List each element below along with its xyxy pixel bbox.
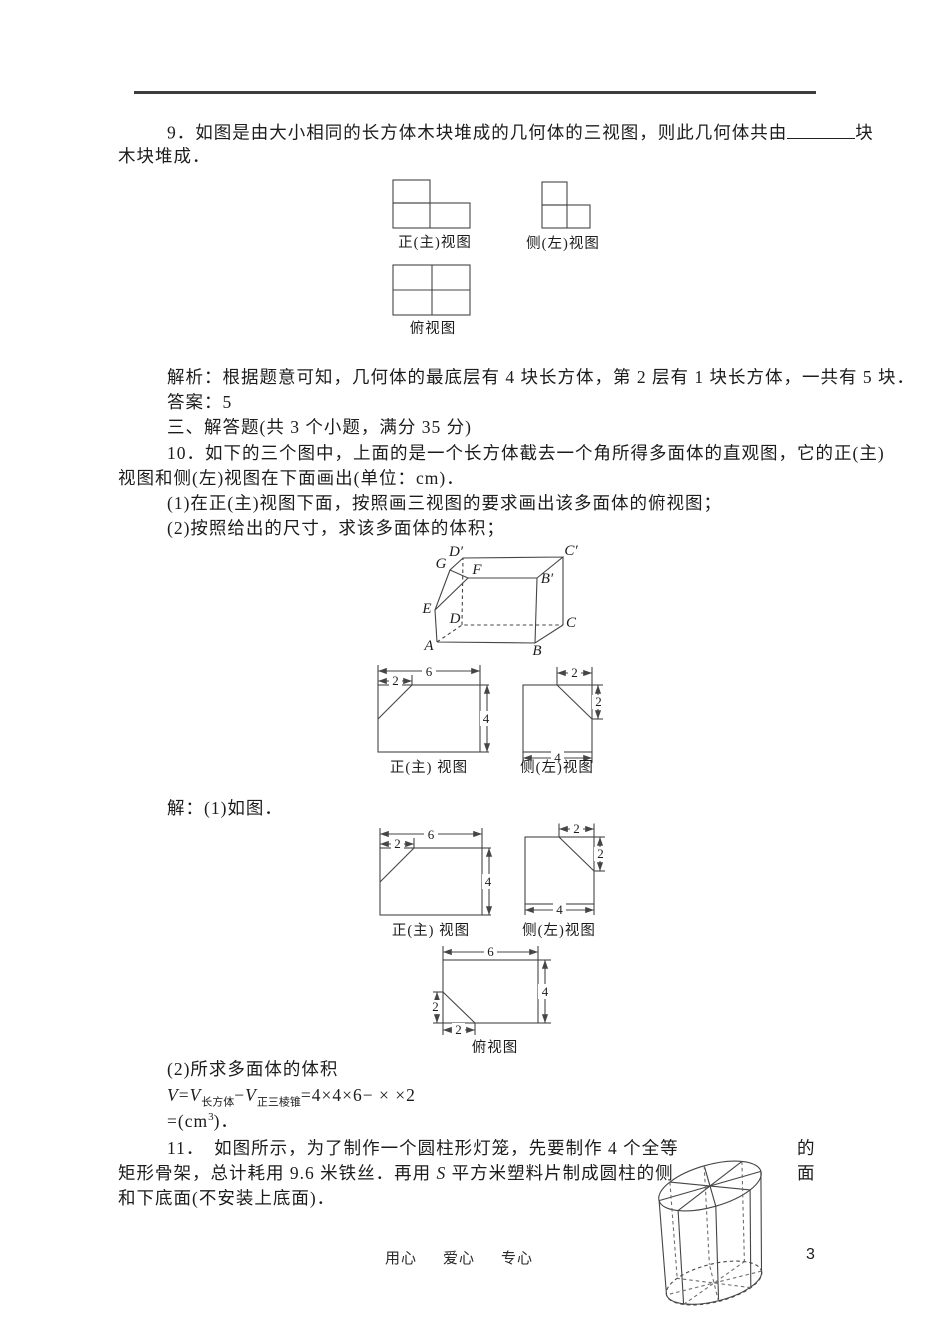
- vertex-label-a: A: [423, 638, 434, 654]
- dim-2: 2: [394, 836, 401, 851]
- answer-side-view: 2 2 4 侧(左)视图: [522, 823, 607, 939]
- vertex-label-c-prime: C′: [564, 545, 578, 559]
- given-side-view: 2 2 4 侧(左)视图: [520, 665, 605, 776]
- vertex-label-g: G: [436, 556, 447, 572]
- footer-motto: 用心爱心专心: [385, 1247, 559, 1268]
- q9-three-views-figure: 正(主)视图 侧(左)视图 俯视图: [380, 175, 610, 340]
- q9-answer: 答案：5: [167, 392, 232, 413]
- q9-front-view-label: 正(主)视图: [398, 234, 472, 251]
- given-front-view-label: 正(主) 视图: [390, 759, 468, 776]
- formula-v-pyramid: V: [245, 1085, 257, 1105]
- q9-top-view-label: 俯视图: [410, 320, 457, 337]
- q9-top-view: 俯视图: [393, 265, 470, 337]
- footer-word-3: 专心: [501, 1251, 533, 1267]
- dim-4: 4: [485, 874, 492, 889]
- vertex-label-b: B: [532, 643, 541, 659]
- vertex-label-b-prime: B′: [541, 571, 554, 587]
- q9-front-view: 正(主)视图: [393, 180, 472, 251]
- dim-6: 6: [487, 944, 494, 959]
- q10-volume-result: =(cm3)．: [167, 1111, 239, 1132]
- q9-analysis: 解析：根据题意可知，几何体的最底层有 4 块长方体，第 2 层有 1 块长方体，…: [167, 367, 915, 388]
- footer-word-2: 爱心: [443, 1251, 475, 1267]
- dim-2: 2: [597, 846, 604, 861]
- formula-v: V: [167, 1085, 179, 1105]
- section3-heading: 三、解答题(共 3 个小题，满分 35 分): [167, 417, 472, 438]
- formula-v-cuboid: V: [190, 1085, 202, 1105]
- result-post: )．: [214, 1111, 239, 1131]
- q10-item2: (2)按照给出的尺寸，求该多面体的体积；: [167, 518, 505, 539]
- dim-2: 2: [573, 823, 580, 836]
- q9-line1: 9．如图是由大小相同的长方体木块堆成的几何体的三视图，则此几何体共由块: [167, 120, 874, 144]
- page-number: 3: [806, 1246, 815, 1264]
- q11-cylinder-figure: [640, 1143, 785, 1318]
- q11-line1: 11． 如图所示，为了制作一个圆柱形灯笼，先要制作 4 个全等: [167, 1138, 679, 1159]
- dim-4: 4: [542, 984, 549, 999]
- q10-item1: (1)在正(主)视图下面，按照画三视图的要求画出该多面体的俯视图；: [167, 493, 722, 514]
- given-side-view-label: 侧(左)视图: [520, 759, 594, 776]
- footer-word-1: 用心: [385, 1251, 417, 1267]
- q11-line2-s: S: [437, 1163, 447, 1183]
- worksheet-page: 9．如图是由大小相同的长方体木块堆成的几何体的三视图，则此几何体共由块 木块堆成…: [0, 0, 950, 1344]
- dim-2: 2: [432, 999, 439, 1014]
- formula-sub-pyramid: 正三棱锥: [257, 1097, 301, 1109]
- dim-4: 4: [483, 711, 490, 726]
- dim-2: 2: [595, 694, 602, 709]
- q10-given-views-figure: 6 2 4 正(主) 视图 2 2 4 侧(左)视图: [370, 660, 615, 785]
- q9-line1-text: 9．如图是由大小相同的长方体木块堆成的几何体的三视图，则此几何体共由: [167, 123, 787, 143]
- q9-side-view-label: 侧(左)视图: [526, 235, 600, 252]
- formula-minus: −: [234, 1085, 245, 1105]
- q11-line1-hang: 的: [797, 1138, 816, 1159]
- q10-line1: 10．如下的三个图中，上面的是一个长方体截去一个角所得多面体的直观图，它的正(主…: [167, 443, 885, 464]
- q11-line2-pre: 矩形骨架，总计耗用 9.6 米铁丝．再用: [118, 1163, 437, 1183]
- vertex-label-d-prime: D′: [448, 545, 464, 560]
- vertex-label-f: F: [471, 562, 482, 578]
- q11-line2-hang: 面: [797, 1163, 816, 1184]
- q10-volume-formula: V=V长方体−V正三棱锥=4×4×6− × ×2: [167, 1085, 416, 1110]
- q10-answer-views-figure: 6 2 4 正(主) 视图 2 2 4 侧(左)视图: [372, 823, 617, 948]
- q10-line2: 视图和侧(左)视图在下面画出(单位：cm)．: [118, 468, 465, 489]
- q10-solution-intro: 解：(1)如图．: [167, 798, 283, 819]
- vertex-label-e: E: [421, 601, 431, 617]
- answer-front-view: 6 2 4 正(主) 视图: [380, 827, 495, 939]
- dim-2: 2: [392, 673, 399, 688]
- answer-side-view-label: 侧(左)视图: [522, 922, 596, 939]
- answer-top-view-label: 俯视图: [472, 1039, 519, 1056]
- result-pre: =(cm: [167, 1111, 208, 1131]
- header-rule: [134, 91, 816, 94]
- q9-line1-tail: 块: [855, 123, 874, 143]
- q11-line2: 矩形骨架，总计耗用 9.6 米铁丝．再用 S 平方米塑料片制成圆柱的侧: [118, 1163, 674, 1184]
- dim-2: 2: [455, 1022, 462, 1037]
- q9-side-view: 侧(左)视图: [526, 182, 600, 252]
- dim-6: 6: [428, 827, 435, 842]
- answer-front-view-label: 正(主) 视图: [392, 922, 470, 939]
- formula-sub-cuboid: 长方体: [201, 1097, 234, 1109]
- q9-answer-blank: [787, 120, 855, 139]
- q11-line3: 和下底面(不安装上底面)．: [118, 1188, 335, 1209]
- q10-cuboid-figure: D′ C′ G F B′ E D C A B: [400, 545, 620, 660]
- dim-6: 6: [426, 664, 433, 679]
- q10-part2-title: (2)所求多面体的体积: [167, 1059, 338, 1080]
- formula-eq: =: [179, 1085, 190, 1105]
- q10-answer-top-view-figure: 6 4 2 2 俯视图: [425, 940, 565, 1058]
- formula-tail: =4×4×6− × ×2: [301, 1085, 416, 1105]
- vertex-label-c: C: [566, 615, 577, 631]
- given-front-view: 6 2 4 正(主) 视图: [378, 664, 493, 776]
- vertex-label-d: D: [449, 611, 461, 627]
- q9-line2: 木块堆成．: [118, 146, 211, 167]
- dim-4: 4: [556, 902, 563, 917]
- dim-2: 2: [571, 665, 578, 680]
